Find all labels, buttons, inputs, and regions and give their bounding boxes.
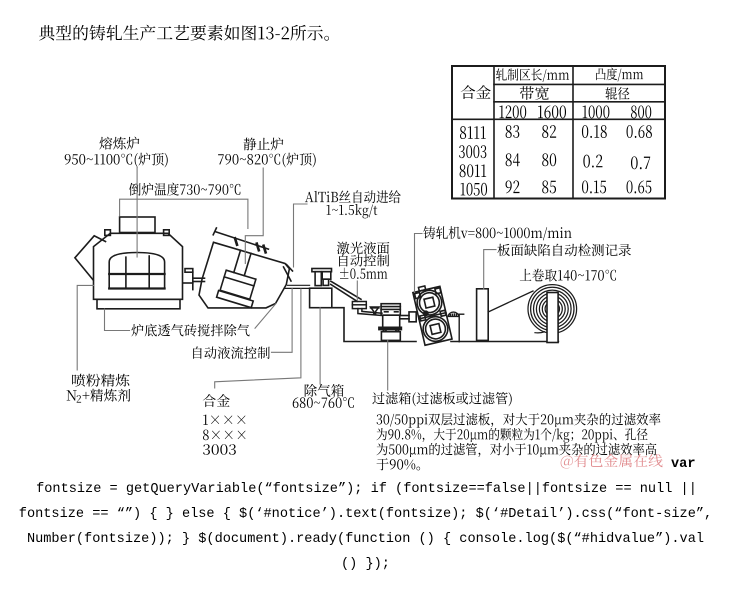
- svg-text:var: var: [671, 457, 695, 472]
- svg-text:() });: () });: [341, 557, 390, 572]
- svg-text:fontsize == “”) { } else { $(‘: fontsize == “”) { } else { $(‘#notice’).…: [19, 507, 712, 522]
- svg-text:Number(fontsize)); } $(documen: Number(fontsize)); } $(document).ready(f…: [27, 532, 704, 547]
- svg-text:fontsize = getQueryVariable(“f: fontsize = getQueryVariable(“fontsize”);…: [36, 482, 697, 497]
